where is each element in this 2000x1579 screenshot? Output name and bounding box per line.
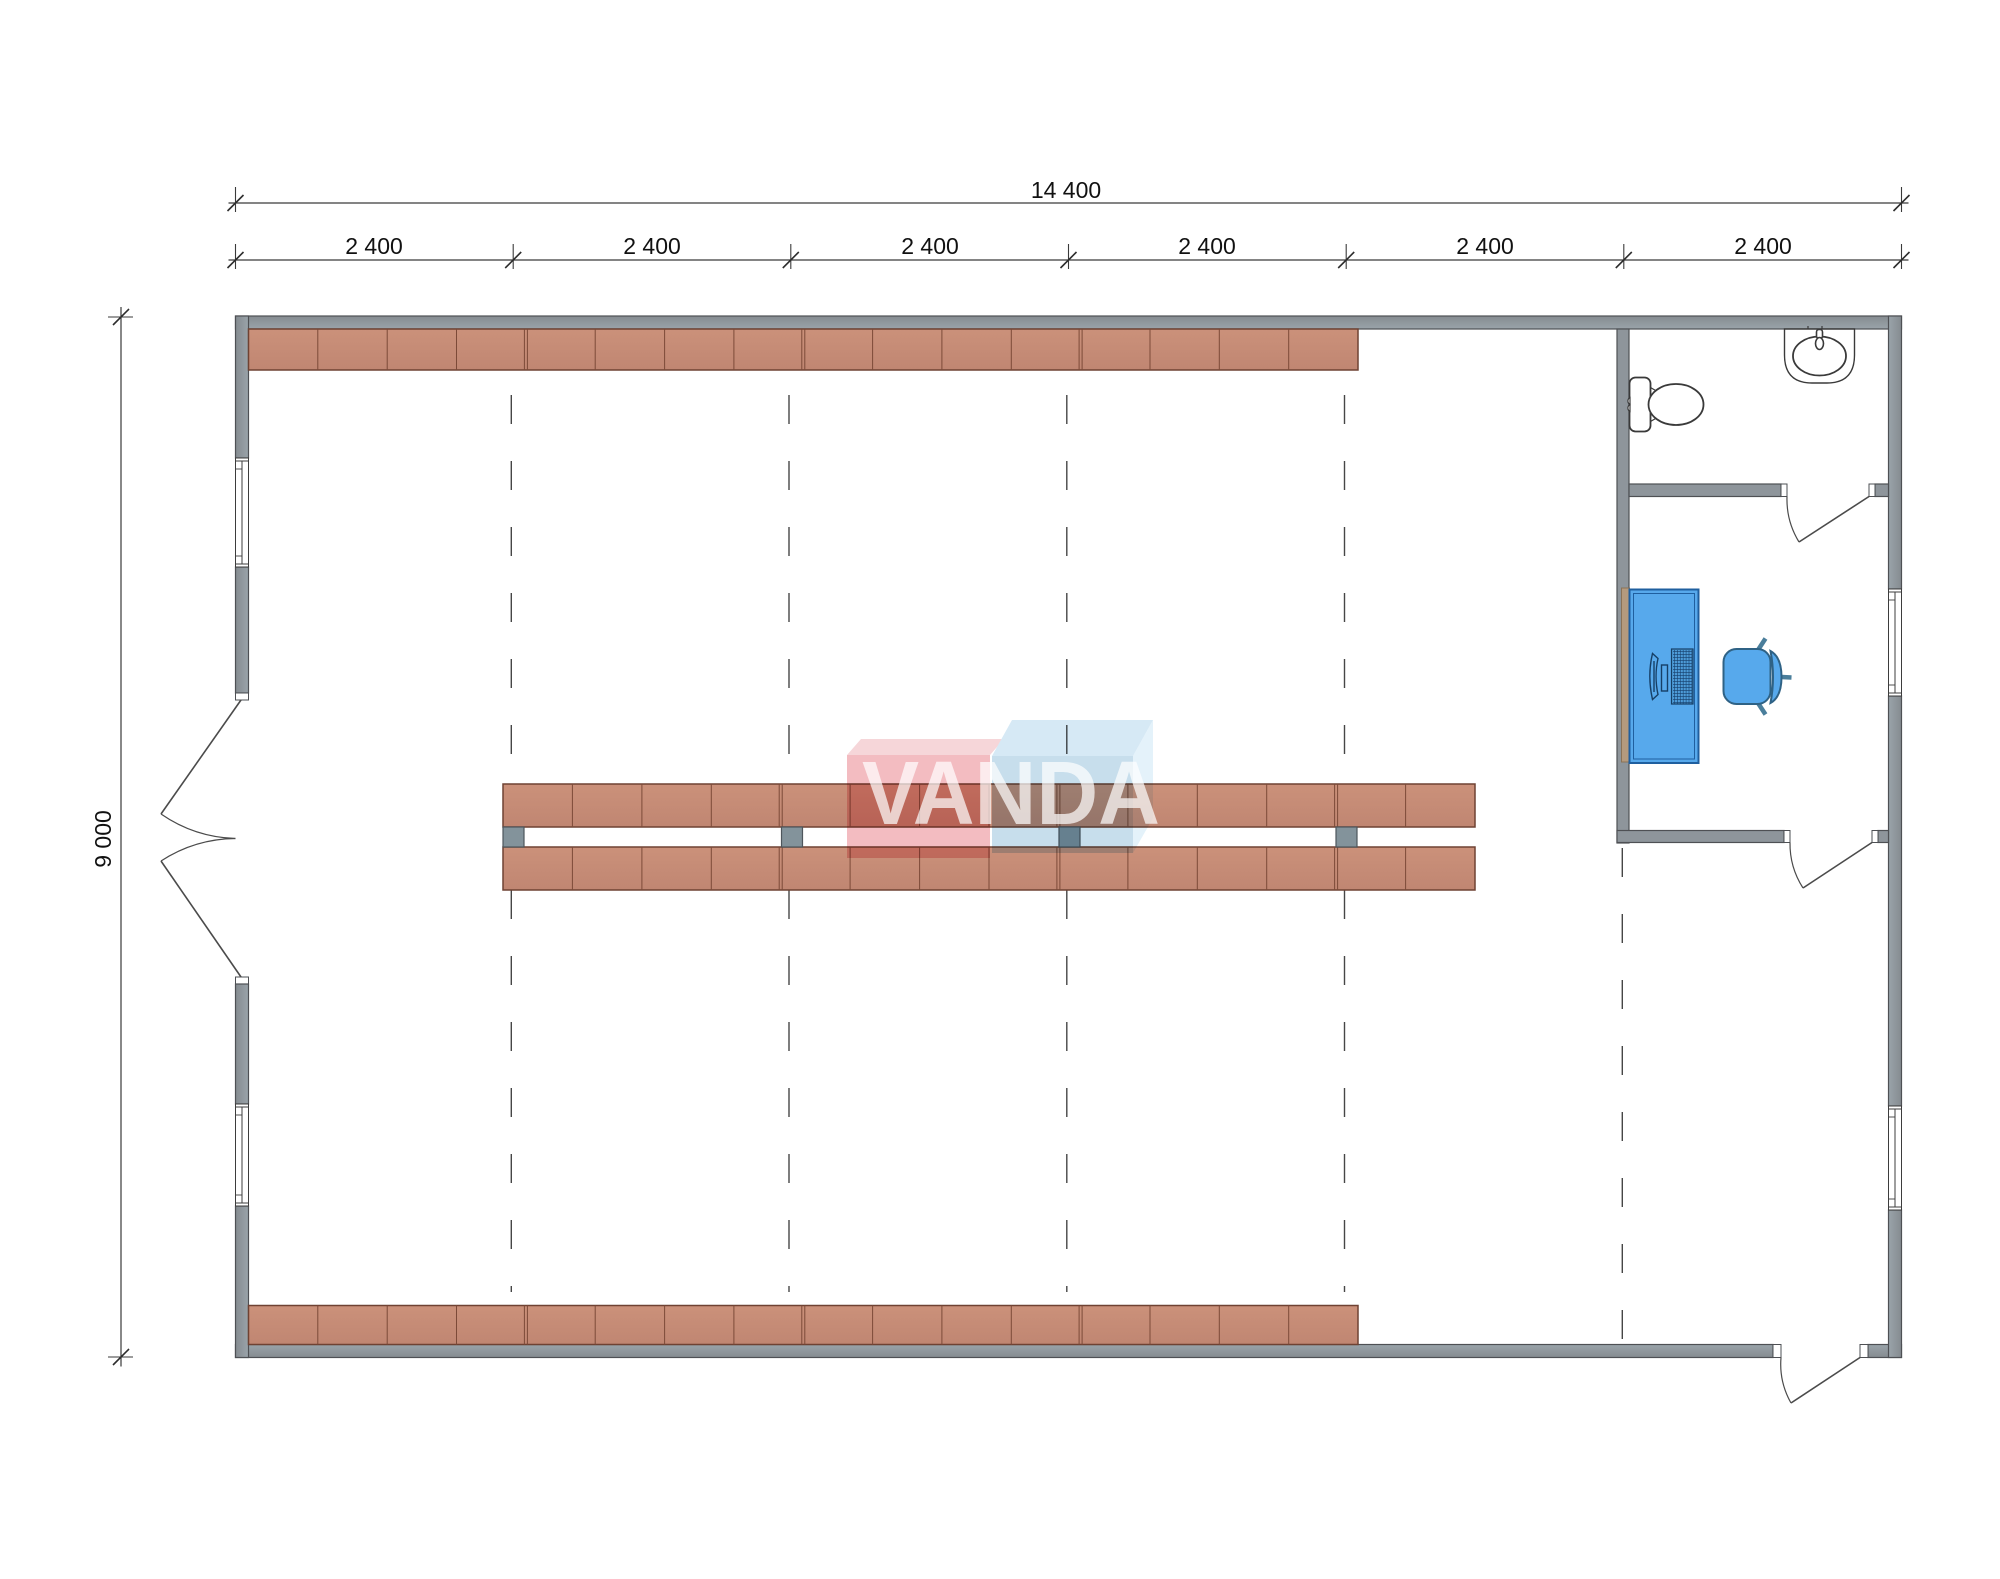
svg-text:9 000: 9 000 — [90, 810, 116, 868]
svg-text:2 400: 2 400 — [1734, 233, 1792, 259]
svg-text:VANDA: VANDA — [862, 744, 1160, 844]
svg-text:2 400: 2 400 — [345, 233, 403, 259]
svg-text:2 400: 2 400 — [901, 233, 959, 259]
svg-text:14 400: 14 400 — [1031, 177, 1101, 203]
svg-text:2 400: 2 400 — [1456, 233, 1514, 259]
svg-text:2 400: 2 400 — [623, 233, 681, 259]
svg-text:2 400: 2 400 — [1178, 233, 1236, 259]
